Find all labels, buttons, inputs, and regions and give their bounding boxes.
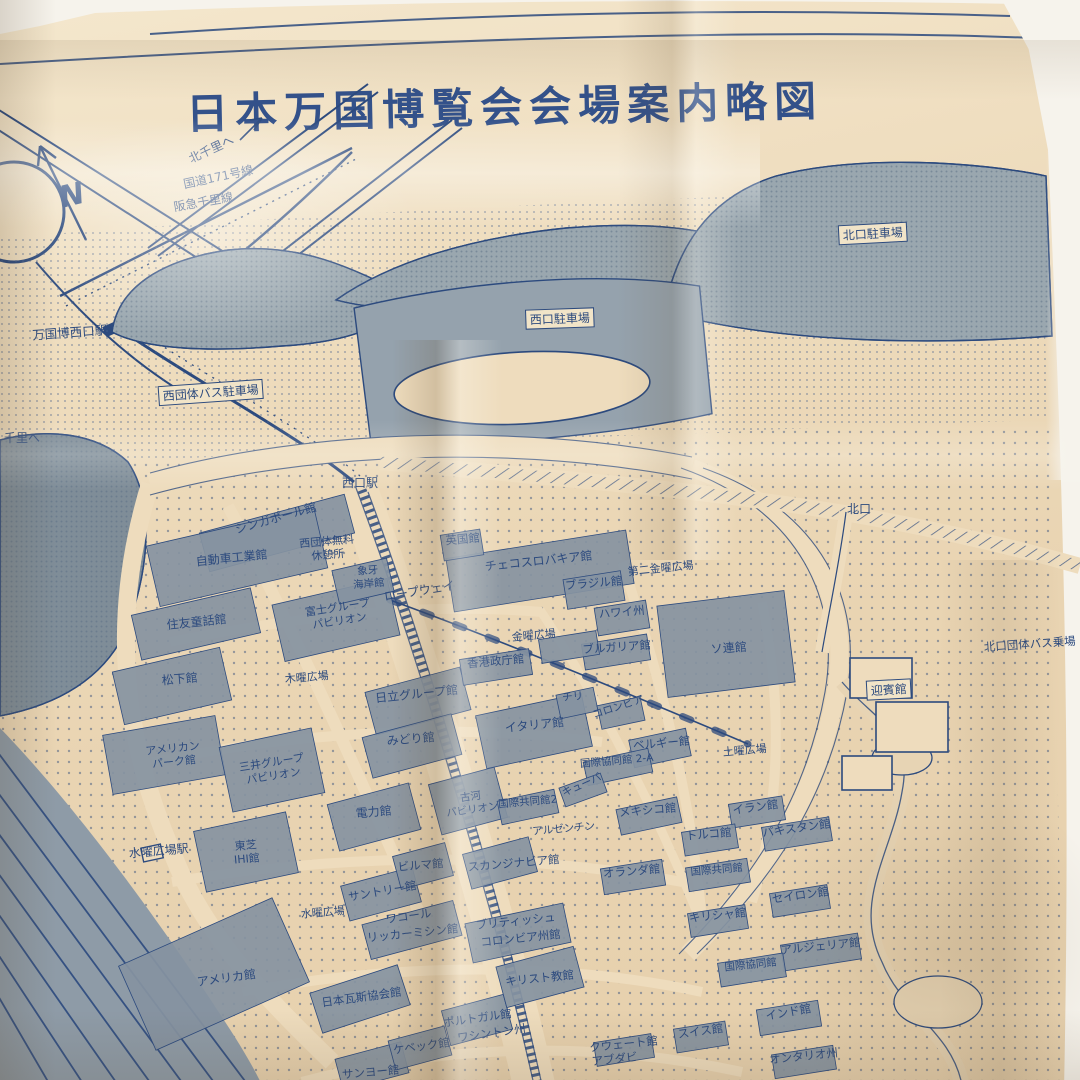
map-label: 西口駐車場 xyxy=(530,310,591,327)
map-label: 電力館 xyxy=(355,802,392,820)
map-label: 松下館 xyxy=(161,669,198,687)
map-label: 北口 xyxy=(847,502,871,516)
map-label: チリ xyxy=(562,690,584,704)
map-label: アメリカンパーク館 xyxy=(145,739,202,771)
map-label: 東芝IHI館 xyxy=(232,838,260,867)
map-svg: 日本万国博覧会会場案内略図 N xyxy=(0,0,1080,1080)
map-label: 千里へ xyxy=(4,431,40,445)
map-label: 迎賓館 xyxy=(870,681,907,698)
fabric-map-photo: 日本万国博覧会会場案内略図 N xyxy=(0,0,1080,1080)
west-parking xyxy=(353,274,712,446)
map-label: 英国館 xyxy=(445,531,481,548)
map-label: 北口駐車場 xyxy=(842,224,903,242)
map-label: ソ連館 xyxy=(710,639,747,656)
map-label: 西口駅 xyxy=(342,476,378,490)
